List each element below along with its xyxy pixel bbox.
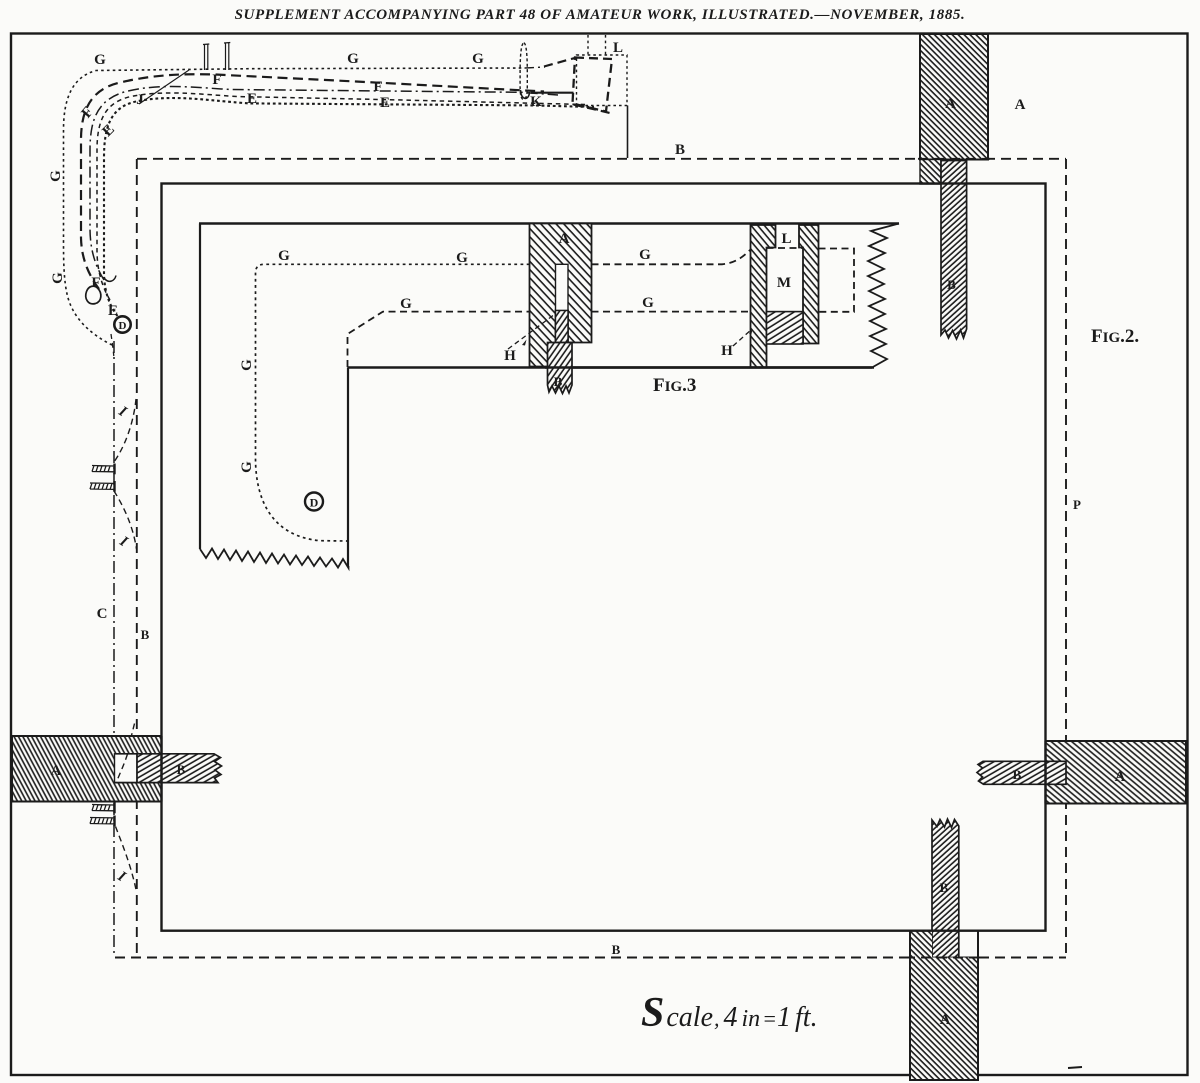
svg-text:A: A — [1015, 97, 1026, 113]
svg-text:A: A — [559, 231, 570, 247]
svg-text:M: M — [777, 275, 791, 291]
svg-text:FIG.3: FIG.3 — [653, 375, 696, 396]
svg-text:G: G — [94, 52, 106, 68]
svg-text:L: L — [613, 40, 623, 56]
svg-text:B: B — [612, 942, 621, 957]
svg-text:FIG.2.: FIG.2. — [1091, 326, 1139, 347]
svg-text:B: B — [675, 142, 685, 158]
svg-text:G: G — [472, 51, 484, 67]
svg-text:G: G — [642, 295, 654, 311]
svg-text:E: E — [380, 95, 390, 111]
svg-text:G: G — [239, 461, 255, 473]
svg-text:G: G — [400, 296, 412, 312]
svg-text:D: D — [310, 496, 319, 510]
svg-text:L: L — [781, 231, 791, 247]
svg-text:F: F — [373, 79, 382, 95]
svg-text:A: A — [945, 96, 956, 112]
svg-text:G: G — [347, 51, 359, 67]
svg-text:G: G — [456, 250, 468, 266]
svg-text:B: B — [554, 374, 563, 389]
svg-text:G: G — [278, 248, 290, 264]
svg-text:P: P — [1073, 497, 1081, 512]
svg-text:G: G — [639, 247, 651, 263]
svg-text:E: E — [108, 303, 118, 319]
svg-text:E: E — [247, 91, 257, 107]
svg-text:F: F — [212, 72, 221, 88]
svg-text:D: D — [119, 320, 127, 332]
svg-text:G: G — [48, 170, 64, 182]
svg-text:SUPPLEMENT ACCOMPANYING PART 4: SUPPLEMENT ACCOMPANYING PART 48 OF AMATE… — [235, 7, 966, 23]
svg-text:J: J — [136, 92, 144, 108]
svg-text:B: B — [177, 762, 186, 777]
svg-text:B: B — [940, 880, 949, 895]
svg-text:K: K — [530, 94, 542, 110]
svg-text:F: F — [91, 275, 100, 291]
svg-text:G: G — [239, 359, 255, 371]
svg-text:C: C — [97, 606, 108, 622]
svg-text:B: B — [141, 627, 150, 642]
svg-text:A: A — [51, 763, 62, 779]
svg-text:A: A — [1115, 769, 1126, 785]
svg-text:H: H — [504, 348, 516, 364]
svg-text:H: H — [721, 343, 733, 359]
svg-text:A: A — [940, 1012, 951, 1028]
svg-text:B: B — [947, 277, 956, 292]
svg-text:B: B — [1013, 767, 1022, 782]
svg-text:G: G — [50, 272, 66, 284]
